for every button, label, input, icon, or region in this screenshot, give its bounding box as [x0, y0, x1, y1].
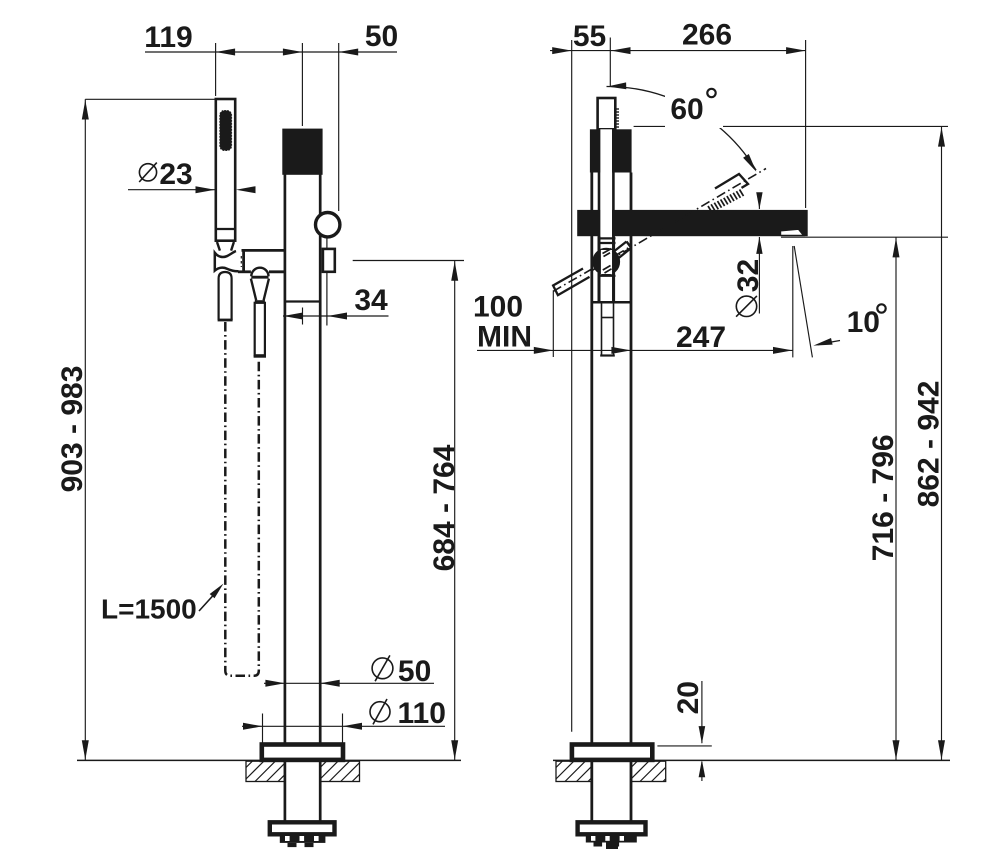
svg-text:23: 23	[159, 158, 192, 191]
svg-text:L=1500: L=1500	[101, 594, 197, 625]
svg-text:32: 32	[732, 259, 765, 292]
svg-text:55: 55	[573, 20, 606, 53]
svg-text:100: 100	[473, 291, 523, 324]
svg-text:903 - 983: 903 - 983	[56, 366, 89, 493]
svg-text:60: 60	[670, 93, 703, 126]
svg-text:MIN: MIN	[477, 320, 532, 353]
svg-text:862 - 942: 862 - 942	[913, 381, 946, 508]
svg-text:266: 266	[682, 19, 732, 52]
svg-text:119: 119	[144, 21, 192, 54]
svg-text:20: 20	[672, 681, 705, 714]
svg-text:10: 10	[847, 306, 880, 339]
svg-text:110: 110	[397, 697, 445, 730]
svg-text:247: 247	[676, 321, 726, 354]
svg-text:716 - 796: 716 - 796	[867, 434, 900, 561]
svg-text:684 - 764: 684 - 764	[428, 444, 461, 571]
svg-text:50: 50	[365, 20, 398, 53]
svg-text:34: 34	[354, 284, 388, 317]
